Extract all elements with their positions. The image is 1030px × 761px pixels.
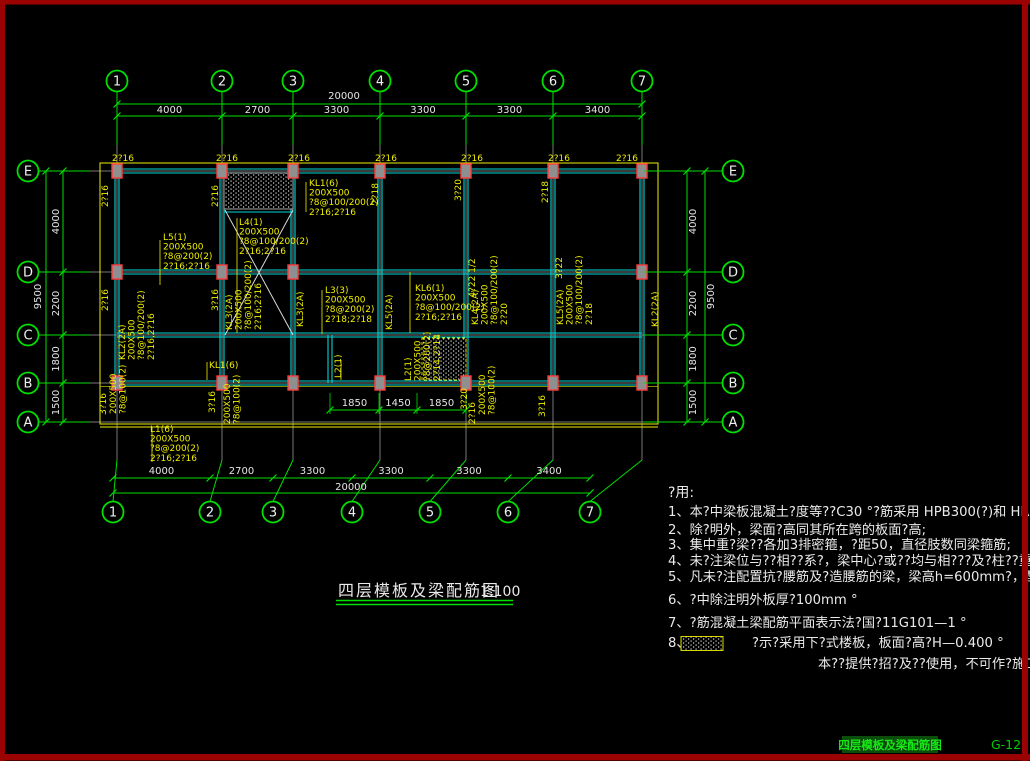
dimension-text: 3300 <box>410 105 435 116</box>
rebar-label: 3?16 <box>99 393 109 415</box>
dimension-text: 9500 <box>33 284 44 309</box>
drawing-scale: 1:100 <box>480 584 520 600</box>
beam-label: KL2(2A)200X500?8@100/200(2)2?16,2?16 <box>118 290 157 360</box>
note-line: 6、?中除注明外板厚?100mm ° <box>668 592 858 608</box>
rebar-label: 3?16 <box>208 391 218 413</box>
grid-bubble-label: 6 <box>504 506 512 521</box>
axis-line <box>113 460 117 502</box>
grid-bubble-label: C <box>23 329 32 344</box>
drawing-canvas[interactable]: 2000040002700330033003300340040002700330… <box>0 0 1030 761</box>
grid-bubble-label: B <box>24 377 33 392</box>
beam-label: L2(1) <box>334 355 344 379</box>
rebar-label: 2?16 <box>101 185 111 207</box>
note-line: 7、?筋混凝土梁配筋平面表示法?国?11G101—1 ° <box>668 614 967 631</box>
column-square <box>461 376 471 390</box>
beam-label: KL1(6) <box>209 361 238 371</box>
drawing-title: 四层模板及梁配筋图 <box>338 581 500 600</box>
rebar-label: 2?16 <box>548 154 570 164</box>
grid-bubble-label: 4 <box>376 75 384 90</box>
rebar-label: 2?16 <box>375 154 397 164</box>
dimension-text: 3400 <box>536 466 561 477</box>
dimension-text: 1500 <box>688 390 699 415</box>
column-square <box>112 164 122 178</box>
grid-bubble-label: B <box>729 377 738 392</box>
grid-bubble-label: 2 <box>218 75 226 90</box>
column-square <box>217 265 227 279</box>
rebar-label: 2?16 <box>468 402 478 424</box>
rebar-label: 3?22 <box>555 257 565 279</box>
column-square <box>288 265 298 279</box>
grid-bubble-label: A <box>729 416 738 431</box>
dimension-text: 20000 <box>335 482 367 493</box>
dimension-text: 3300 <box>456 466 481 477</box>
beam-label: KL1(6)200X500?8@100/200(2)2?16;2?16 <box>309 179 379 218</box>
beam-label: L4(1)200X500?8@100/200(2)2?16;2?16 <box>239 218 309 257</box>
grid-bubble-label: 5 <box>462 75 470 90</box>
axis-line <box>590 460 642 502</box>
dimension-text: 4000 <box>51 209 62 234</box>
beam-label: L2(1)200X500?8@200(2)2?14;2?14 <box>404 332 443 381</box>
rebar-label: 3?20 <box>454 179 464 201</box>
grid-bubble-label: 3 <box>289 75 297 90</box>
grid-bubble-label: D <box>23 266 33 281</box>
floor-plan: 2000040002700330033003300340040002700330… <box>18 71 1030 673</box>
rebar-label: 4?22 1/2 <box>468 258 478 297</box>
hatch-area <box>224 173 293 209</box>
beam-label: KL3(2A) <box>296 291 306 327</box>
dimension-text: 1800 <box>688 346 699 371</box>
rebar-label: 3?16 <box>538 395 548 417</box>
dimension-text: 2700 <box>245 105 270 116</box>
beam-label: L1(6)200X500?8@200(2)2?16;2?16 <box>150 425 199 464</box>
beam-label: 200X500?8@100(2) <box>478 366 498 415</box>
grid-bubble-label: E <box>729 165 737 180</box>
dimension-text: 1450 <box>385 398 410 409</box>
dimension-text: 4000 <box>688 209 699 234</box>
column-square <box>288 376 298 390</box>
column-square <box>548 164 558 178</box>
column-square <box>548 376 558 390</box>
note-line: 4、未?注梁位与??相??系?，梁中心?或??均与相???及?柱??重合; <box>668 553 1030 569</box>
note-line: ?示?采用下?式楼板，板面?高?H—0.400 ° <box>752 634 1004 651</box>
dimension-text: 20000 <box>328 91 360 102</box>
axis-line <box>273 460 293 502</box>
grid-bubble-label: E <box>24 165 32 180</box>
grid-bubble-label: 6 <box>549 75 557 90</box>
column-square <box>375 164 385 178</box>
grid-bubble-label: 2 <box>206 506 214 521</box>
rebar-label: 2?16 <box>461 154 483 164</box>
note-line: 5、凡未?注配置抗?腰筋及?造腰筋的梁，梁高h=600mm?，配置4? <box>668 568 1030 585</box>
statusbar-doc-name[interactable]: 四层模板及梁配筋图 <box>838 738 942 752</box>
statusbar-sheet-number: G-12 <box>991 737 1021 752</box>
beam-label: L3(3)200X500?8@200(2)2?18;2?18 <box>325 286 374 325</box>
rebar-label: 2?16 <box>211 185 221 207</box>
dimension-text: 2700 <box>229 466 254 477</box>
dimension-text: 3300 <box>497 105 522 116</box>
beam-label: L5(1)200X500?8@200(2)2?16;2?16 <box>163 233 212 272</box>
dimension-text: 1500 <box>51 390 62 415</box>
dimension-text: 4000 <box>157 105 182 116</box>
note-footer: 本??提供?招?及??使用，不可作?施工用 <box>818 655 1030 672</box>
note-heading: ?用: <box>668 485 694 501</box>
note-line: 2、除?明外，梁面?高同其所在跨的板面?高; <box>668 521 926 538</box>
rebar-label: 2?16 <box>288 154 310 164</box>
dimension-text: 2200 <box>688 291 699 316</box>
note-line: 1、本?中梁板混凝土?度等??C30 °?筋采用 HPB300(?)和 HRB4 <box>668 503 1030 520</box>
rebar-label: 2?18 <box>541 181 551 203</box>
column-square <box>288 164 298 178</box>
column-square <box>375 376 385 390</box>
dimension-text: 1850 <box>342 398 367 409</box>
dimension-text: 3300 <box>324 105 349 116</box>
rebar-label: 2?16 <box>616 154 638 164</box>
rebar-label: 3?16 <box>211 289 221 311</box>
column-square <box>112 265 122 279</box>
rebar-label: 2?16 <box>101 289 111 311</box>
grid-bubble-label: 4 <box>348 506 356 521</box>
column-square <box>217 164 227 178</box>
grid-bubble-label: D <box>728 266 738 281</box>
axis-line <box>210 460 222 502</box>
grid-bubble-label: C <box>728 329 737 344</box>
dimension-text: 1850 <box>429 398 454 409</box>
beam-label: 200X500?8@100(2) <box>109 365 129 414</box>
rebar-label: 2?16 <box>216 154 238 164</box>
dimension-text: 2200 <box>51 291 62 316</box>
beam-label: KL5(2A) <box>385 294 395 330</box>
column-square <box>461 164 471 178</box>
axis-line <box>352 460 380 502</box>
rebar-label: 2?18 <box>371 183 381 205</box>
grid-bubble-label: 3 <box>269 506 277 521</box>
note-line: 3、集中重?梁??各加3排密箍，?距50，直径肢数同梁箍筋; <box>668 536 1011 553</box>
dimension-text: 1800 <box>51 346 62 371</box>
grid-bubble-label: 5 <box>426 506 434 521</box>
dimension-text: 3300 <box>378 466 403 477</box>
rebar-label: 2?16 <box>112 154 134 164</box>
grid-bubble-label: 7 <box>638 75 646 90</box>
dimension-text: 9500 <box>706 284 717 309</box>
beam-label: KL2(2A) <box>651 291 661 327</box>
dimension-text: 4000 <box>149 466 174 477</box>
cad-application-window: 2000040002700330033003300340040002700330… <box>0 0 1030 761</box>
grid-bubble-label: A <box>24 416 33 431</box>
dimension-text: 3400 <box>585 105 610 116</box>
grid-bubble-label: 1 <box>109 506 117 521</box>
note-hatch-swatch <box>681 637 723 651</box>
grid-bubble-label: 7 <box>586 506 594 521</box>
grid-bubble-label: 1 <box>113 75 121 90</box>
dimension-text: 3300 <box>300 466 325 477</box>
